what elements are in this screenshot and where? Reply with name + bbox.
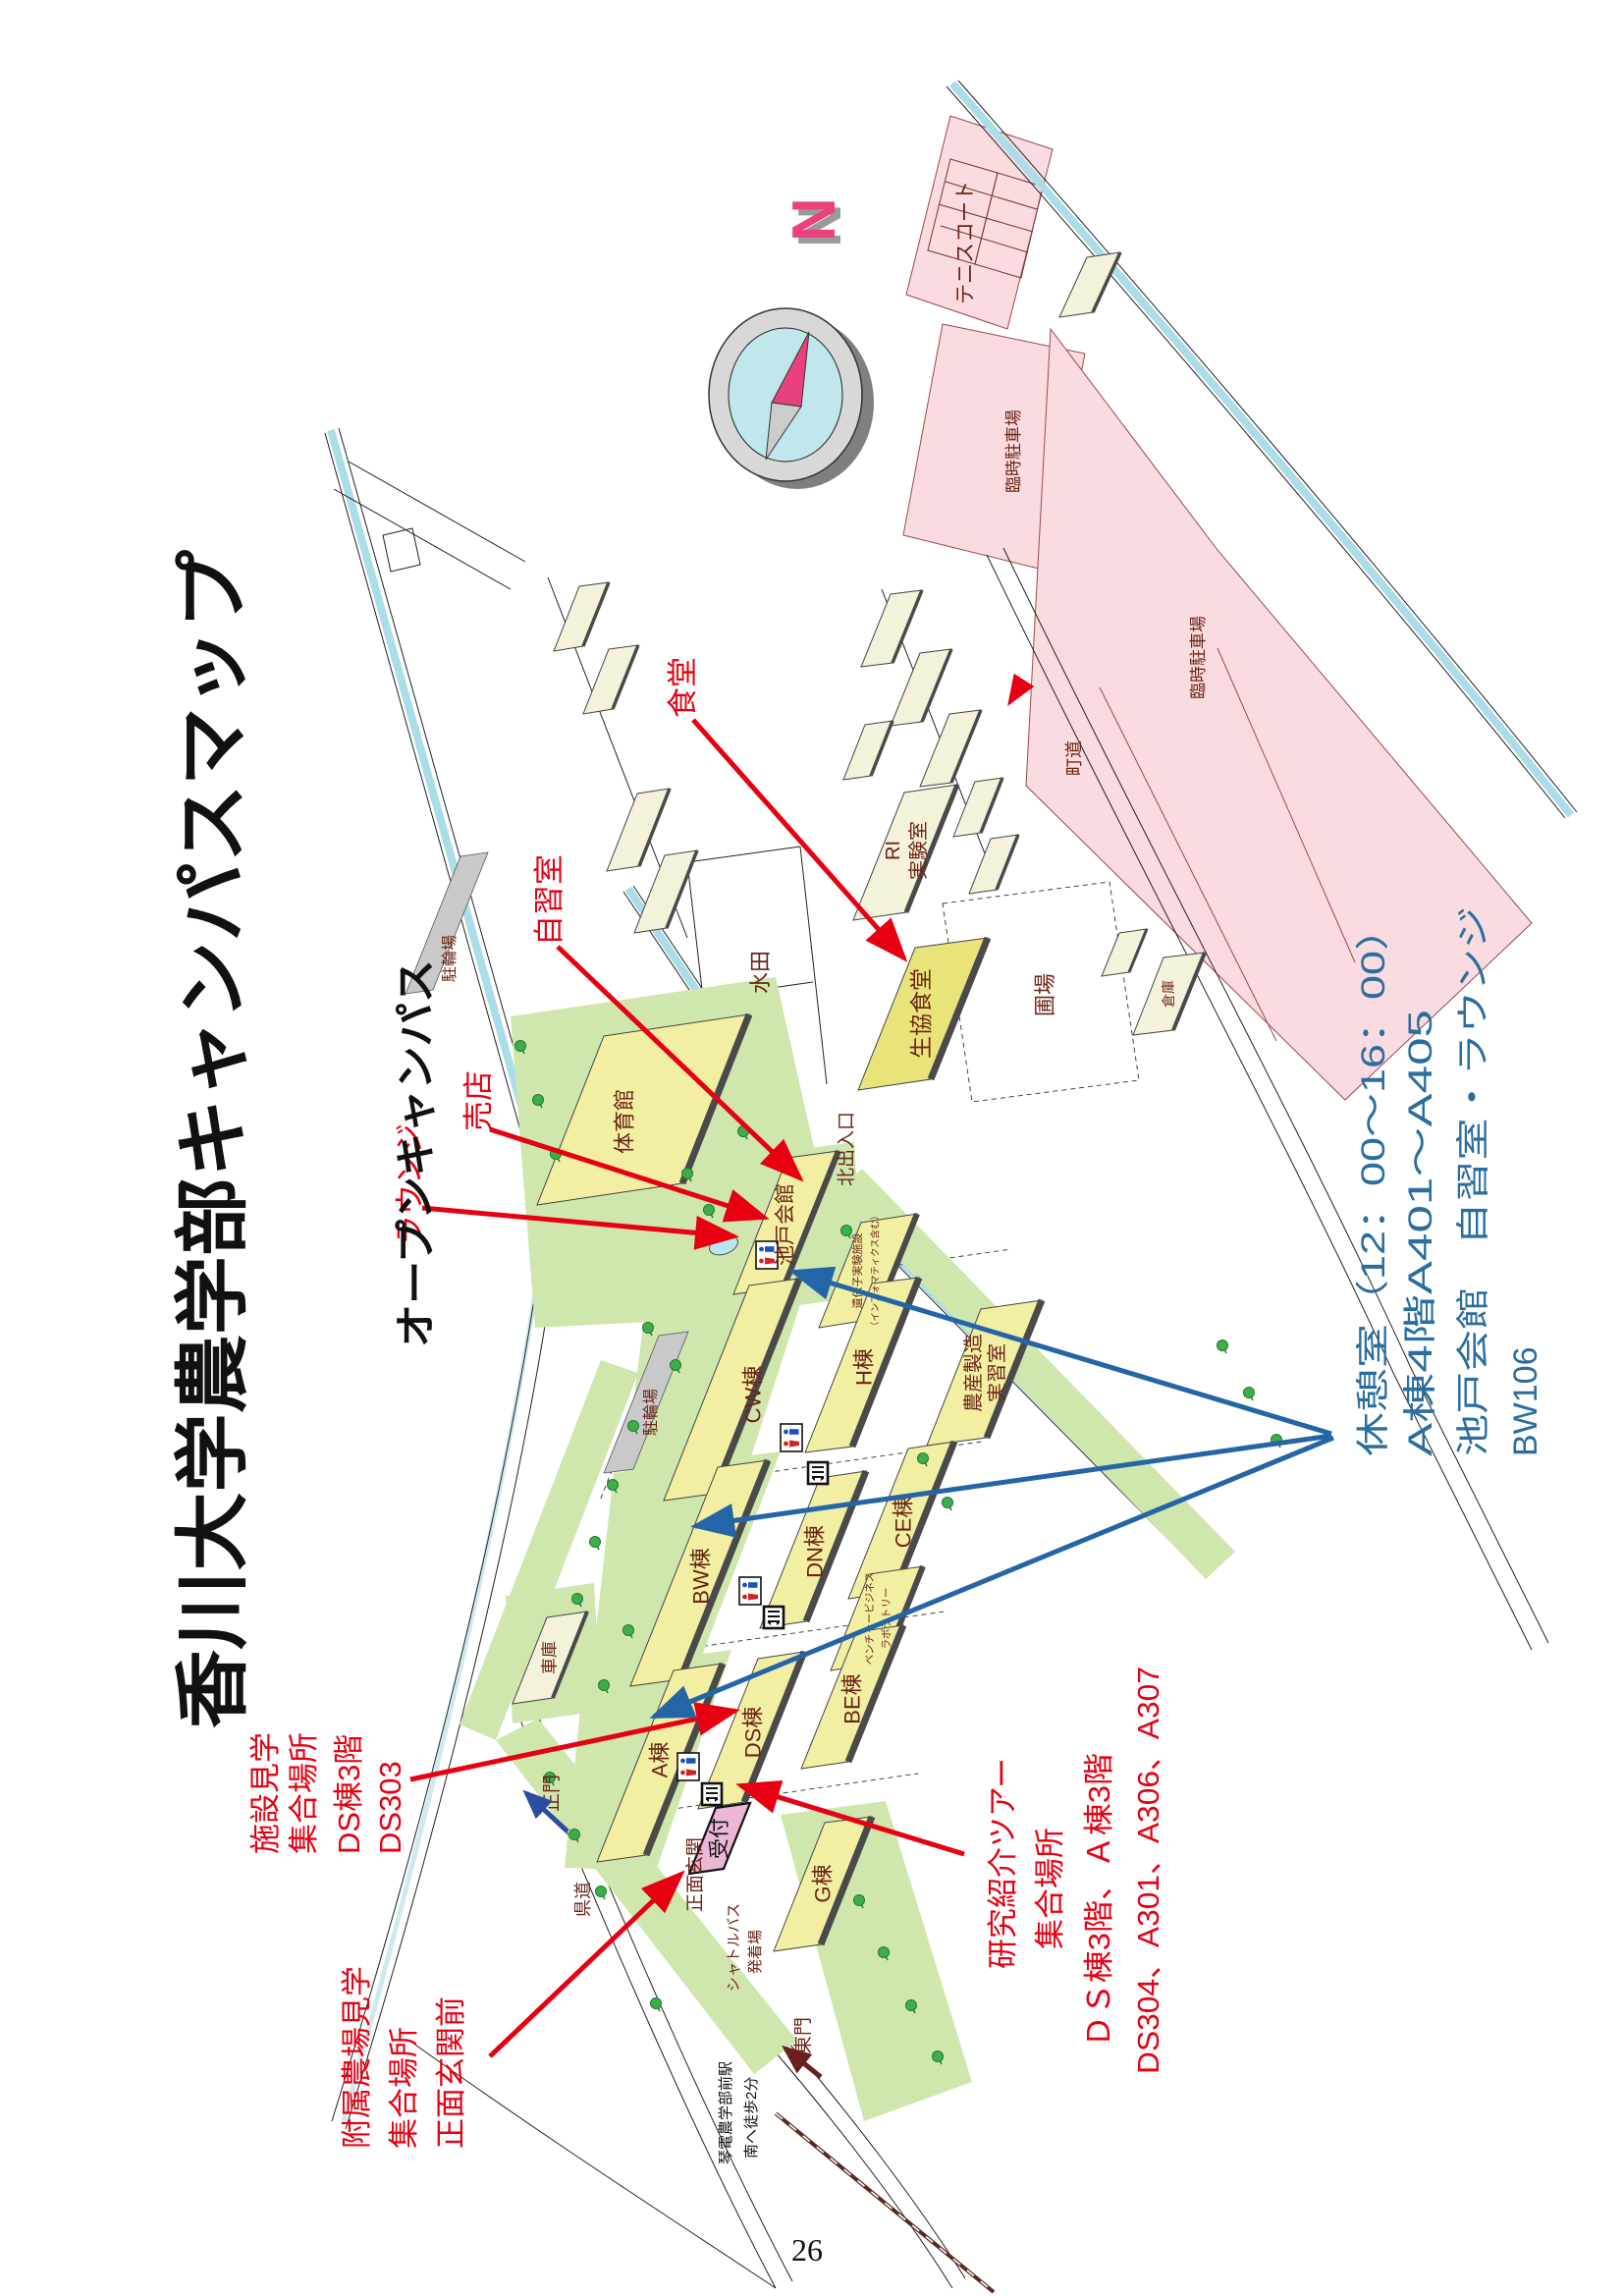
svg-text:施設見学: 施設見学 [248,1732,283,1854]
label-churinjo-1: 駐輪場 [441,935,459,982]
page-subtitle: オープンキャンパス [393,959,439,1347]
note-shop: 売店 [461,1070,496,1131]
label-gym: 体育館 [613,1089,637,1154]
note-canteen: 食堂 [666,657,700,718]
label-ds: DS棟 [741,1707,766,1759]
svg-text:附属農場見学: 附属農場見学 [340,1966,374,2149]
label-station-2: 南へ徒歩2分 [743,2077,760,2159]
page-title: 香川大学農学部キャンパスマップ [172,550,255,1728]
svg-text:ＤＳ棟3階、Ａ棟3階: ＤＳ棟3階、Ａ棟3階 [1082,1753,1116,2048]
label-ri-2: 実験室 [907,821,930,880]
label-parking2: 臨時駐車場 [1189,616,1208,699]
campus-map-page: 体育館 池戸会館 遺伝子実験施設 （インフォマティクス含む） CW棟 H棟 農産… [0,0,1623,2296]
svg-text:休憩室（12：00～16：00）: 休憩室（12：00～16：00） [1355,906,1392,1456]
label-nosan-2: 実習室 [986,1343,1008,1402]
svg-text:集合場所: 集合場所 [1033,1828,1067,1949]
label-churinjo-2: 駐輪場 [642,1389,660,1436]
label-dn: DN棟 [803,1525,828,1578]
label-ce: CE棟 [892,1497,916,1549]
label-seikyo: 生協食堂 [908,968,934,1059]
label-h: H棟 [852,1348,877,1386]
svg-text:集合場所: 集合場所 [387,2027,421,2149]
svg-text:DS304、A301、A306、A307: DS304、A301、A306、A307 [1131,1667,1165,2074]
note-research-tour: 研究紹介ツアー 集合場所 ＤＳ棟3階、Ａ棟3階 DS304、A301、A306、… [986,1667,1165,2074]
svg-text:BW106: BW106 [1507,1347,1544,1457]
label-road-cho: 町道 [1064,740,1084,776]
label-east-gate: 東門 [792,2017,814,2054]
label-vbl-1: ベンチャービジネス [864,1572,876,1665]
label-ri-1: RI [883,841,904,860]
label-kita-gate: 北出入口 [836,1112,857,1186]
north-gate-arrow-icon [1009,682,1023,703]
svg-text:正面玄関前: 正面玄関前 [434,1996,468,2149]
svg-text:池戸会館 自習室・ラウンジ: 池戸会館 自習室・ラウンジ [1455,906,1492,1456]
tennis-court-area [906,116,1053,329]
label-bw: BW棟 [689,1548,714,1604]
campus-map-svg: 体育館 池戸会館 遺伝子実験施設 （インフォマティクス含む） CW棟 H棟 農産… [0,0,1623,2296]
note-farm-tour: 附属農場見学 集合場所 正面玄関前 [340,1966,468,2149]
note-facility-tour: 施設見学 集合場所 DS棟3階 DS303 [248,1732,407,1854]
label-gene-lab-2: （インフォマティクス含む） [870,1211,882,1331]
label-soko: 倉庫 [1161,980,1176,1008]
label-g: G棟 [811,1864,836,1902]
label-road-ken: 県道 [573,1882,593,1917]
compass-north-label: N [781,197,848,242]
label-cw: CW棟 [741,1366,766,1424]
label-shuttle-1: シャトルバス [726,1903,742,1992]
label-suiden: 水田 [748,951,773,994]
svg-text:A棟4階A401～A405: A棟4階A401～A405 [1402,1010,1439,1456]
label-hojo: 圃場 [1033,973,1057,1016]
page-number: 26 [791,2232,823,2268]
label-a: A棟 [648,1742,673,1778]
label-tennis: テニスコート [954,181,977,304]
label-reception: 受付 [709,1818,731,1859]
label-be: BE棟 [840,1673,865,1723]
compass-icon: N N [709,197,874,489]
svg-text:DS303: DS303 [373,1761,407,1854]
note-study-room: 自習室 [532,854,567,946]
label-main-gate: 正門 [542,1775,563,1812]
label-nosan-1: 農産製造 [962,1334,985,1412]
label-gene-lab-1: 遺伝子実験施設 [850,1233,864,1309]
svg-text:DS棟3階: DS棟3階 [332,1734,366,1854]
svg-text:集合場所: 集合場所 [287,1732,321,1854]
label-station-1: 琴電農学部前駅 [718,2061,734,2164]
label-parking1: 臨時駐車場 [1004,410,1023,493]
label-front-entrance: 正面玄関 [684,1837,706,1912]
svg-text:研究紹介ツアー: 研究紹介ツアー [986,1758,1020,1969]
label-shuttle-2: 発着場 [747,1930,764,1974]
label-ikeda-hall: 池戸会館 [775,1183,797,1266]
label-shako: 車庫 [541,1641,560,1674]
pink-areas [903,116,1532,1100]
